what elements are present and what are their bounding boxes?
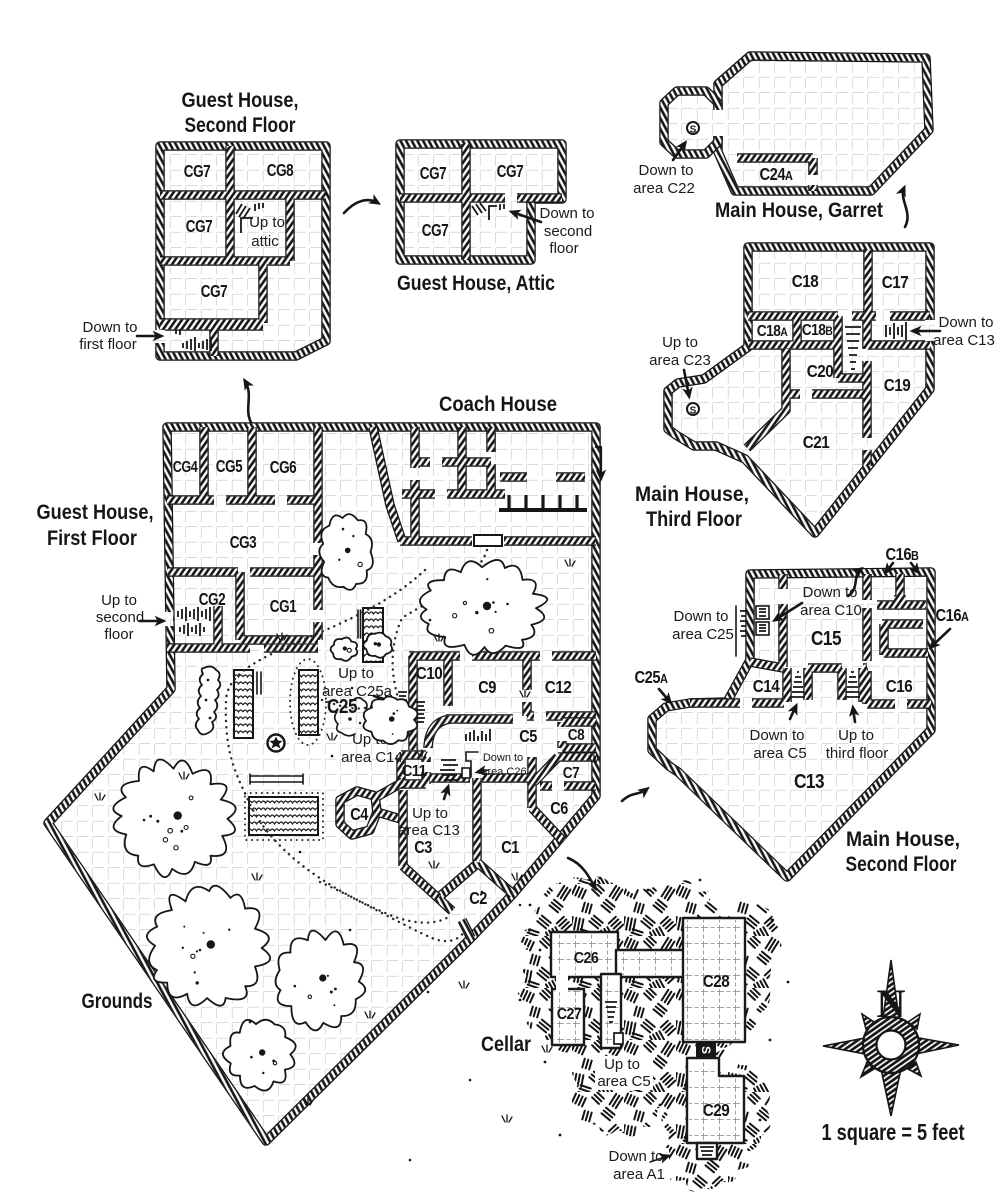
svg-text:CG7: CG7 (420, 163, 446, 183)
svg-text:Guest House, Attic: Guest House, Attic (397, 272, 555, 295)
svg-text:Up to: Up to (338, 665, 374, 682)
svg-text:area C14: area C14 (341, 749, 403, 766)
svg-text:floor: floor (549, 240, 578, 257)
svg-text:Down to: Down to (673, 608, 728, 625)
svg-text:Main House, Garret: Main House, Garret (715, 199, 883, 222)
svg-text:Down to: Down to (638, 162, 693, 179)
svg-text:area C22: area C22 (633, 180, 695, 197)
svg-text:C21: C21 (803, 432, 830, 452)
svg-text:Down to: Down to (802, 584, 857, 601)
svg-text:CG7: CG7 (184, 161, 210, 181)
svg-text:C17: C17 (882, 272, 908, 292)
svg-text:Second Floor: Second Floor (846, 853, 957, 876)
svg-text:Second Floor: Second Floor (185, 114, 296, 137)
svg-text:Cellar: Cellar (481, 1033, 531, 1056)
svg-text:Grounds: Grounds (82, 990, 153, 1013)
svg-text:C18B: C18B (802, 322, 833, 339)
svg-text:CG7: CG7 (422, 220, 448, 240)
svg-text:Main House,: Main House, (635, 483, 749, 506)
svg-text:C29: C29 (703, 1100, 730, 1120)
svg-text:C7: C7 (563, 765, 580, 782)
svg-text:Down to: Down to (608, 1148, 663, 1165)
svg-text:area C23: area C23 (649, 352, 711, 369)
svg-text:C28: C28 (703, 971, 730, 991)
svg-text:second: second (544, 223, 592, 240)
svg-text:C1: C1 (501, 837, 519, 857)
svg-text:CG4: CG4 (173, 459, 198, 476)
svg-text:C4: C4 (350, 804, 368, 824)
svg-text:third floor: third floor (826, 745, 889, 762)
svg-text:area C5: area C5 (753, 745, 806, 762)
svg-text:Guest House,: Guest House, (37, 501, 154, 524)
svg-text:CG7: CG7 (201, 281, 227, 301)
svg-text:Third Floor: Third Floor (646, 508, 742, 531)
svg-text:Down to: Down to (749, 727, 804, 744)
svg-text:C19: C19 (884, 375, 911, 395)
svg-text:Up to: Up to (412, 805, 448, 822)
svg-text:CG6: CG6 (270, 457, 297, 477)
svg-text:CG1: CG1 (270, 596, 297, 616)
svg-text:CG7: CG7 (186, 216, 212, 236)
svg-text:N: N (877, 981, 906, 1026)
svg-text:CG7: CG7 (497, 161, 523, 181)
svg-text:Down to: Down to (483, 752, 523, 764)
svg-text:CG8: CG8 (267, 160, 294, 180)
svg-text:C18A: C18A (757, 323, 788, 340)
svg-text:Down to: Down to (82, 319, 137, 336)
svg-text:area A1: area A1 (613, 1166, 665, 1183)
svg-text:S: S (690, 125, 697, 136)
svg-text:Guest House,: Guest House, (182, 89, 299, 112)
svg-text:C15: C15 (811, 628, 841, 650)
svg-text:C13: C13 (794, 771, 824, 793)
svg-text:area C26: area C26 (481, 766, 526, 778)
svg-text:area C25: area C25 (672, 626, 734, 643)
svg-text:C20: C20 (807, 361, 834, 381)
svg-text:1 square = 5 feet: 1 square = 5 feet (822, 1119, 965, 1145)
svg-text:Up to: Up to (249, 214, 285, 231)
svg-text:C27: C27 (557, 1006, 582, 1023)
svg-text:S: S (699, 1046, 713, 1054)
svg-text:C26: C26 (574, 950, 599, 967)
svg-text:floor: floor (104, 626, 133, 643)
svg-text:second: second (96, 609, 144, 626)
svg-text:C11: C11 (402, 763, 427, 780)
svg-text:C10: C10 (416, 663, 443, 683)
svg-text:S: S (690, 406, 697, 417)
svg-text:area C10: area C10 (800, 602, 862, 619)
svg-text:Main House,: Main House, (846, 828, 960, 851)
svg-text:C8: C8 (568, 727, 585, 744)
svg-text:attic: attic (251, 233, 279, 250)
svg-text:Up to: Up to (662, 334, 698, 351)
svg-text:Down to: Down to (539, 205, 594, 222)
svg-text:C9: C9 (478, 677, 496, 697)
svg-text:Up to: Up to (838, 727, 874, 744)
svg-text:First Floor: First Floor (47, 527, 137, 550)
svg-text:C14: C14 (753, 676, 780, 696)
svg-text:Coach House: Coach House (439, 393, 557, 416)
svg-text:C12: C12 (545, 677, 572, 697)
svg-text:Up to: Up to (604, 1056, 640, 1073)
svg-text:first floor: first floor (79, 336, 137, 353)
svg-text:CG2: CG2 (199, 589, 226, 609)
svg-text:CG5: CG5 (216, 456, 243, 476)
svg-text:C2: C2 (469, 888, 487, 908)
svg-text:Down to: Down to (938, 314, 993, 331)
svg-text:C3: C3 (414, 837, 432, 857)
svg-text:area C13: area C13 (933, 332, 995, 349)
svg-text:C5: C5 (519, 726, 537, 746)
svg-text:C6: C6 (550, 798, 568, 818)
svg-text:area C5: area C5 (597, 1073, 650, 1090)
svg-text:C18: C18 (792, 271, 819, 291)
svg-text:C16: C16 (886, 676, 913, 696)
svg-text:Up to: Up to (101, 592, 137, 609)
svg-text:CG3: CG3 (230, 532, 257, 552)
